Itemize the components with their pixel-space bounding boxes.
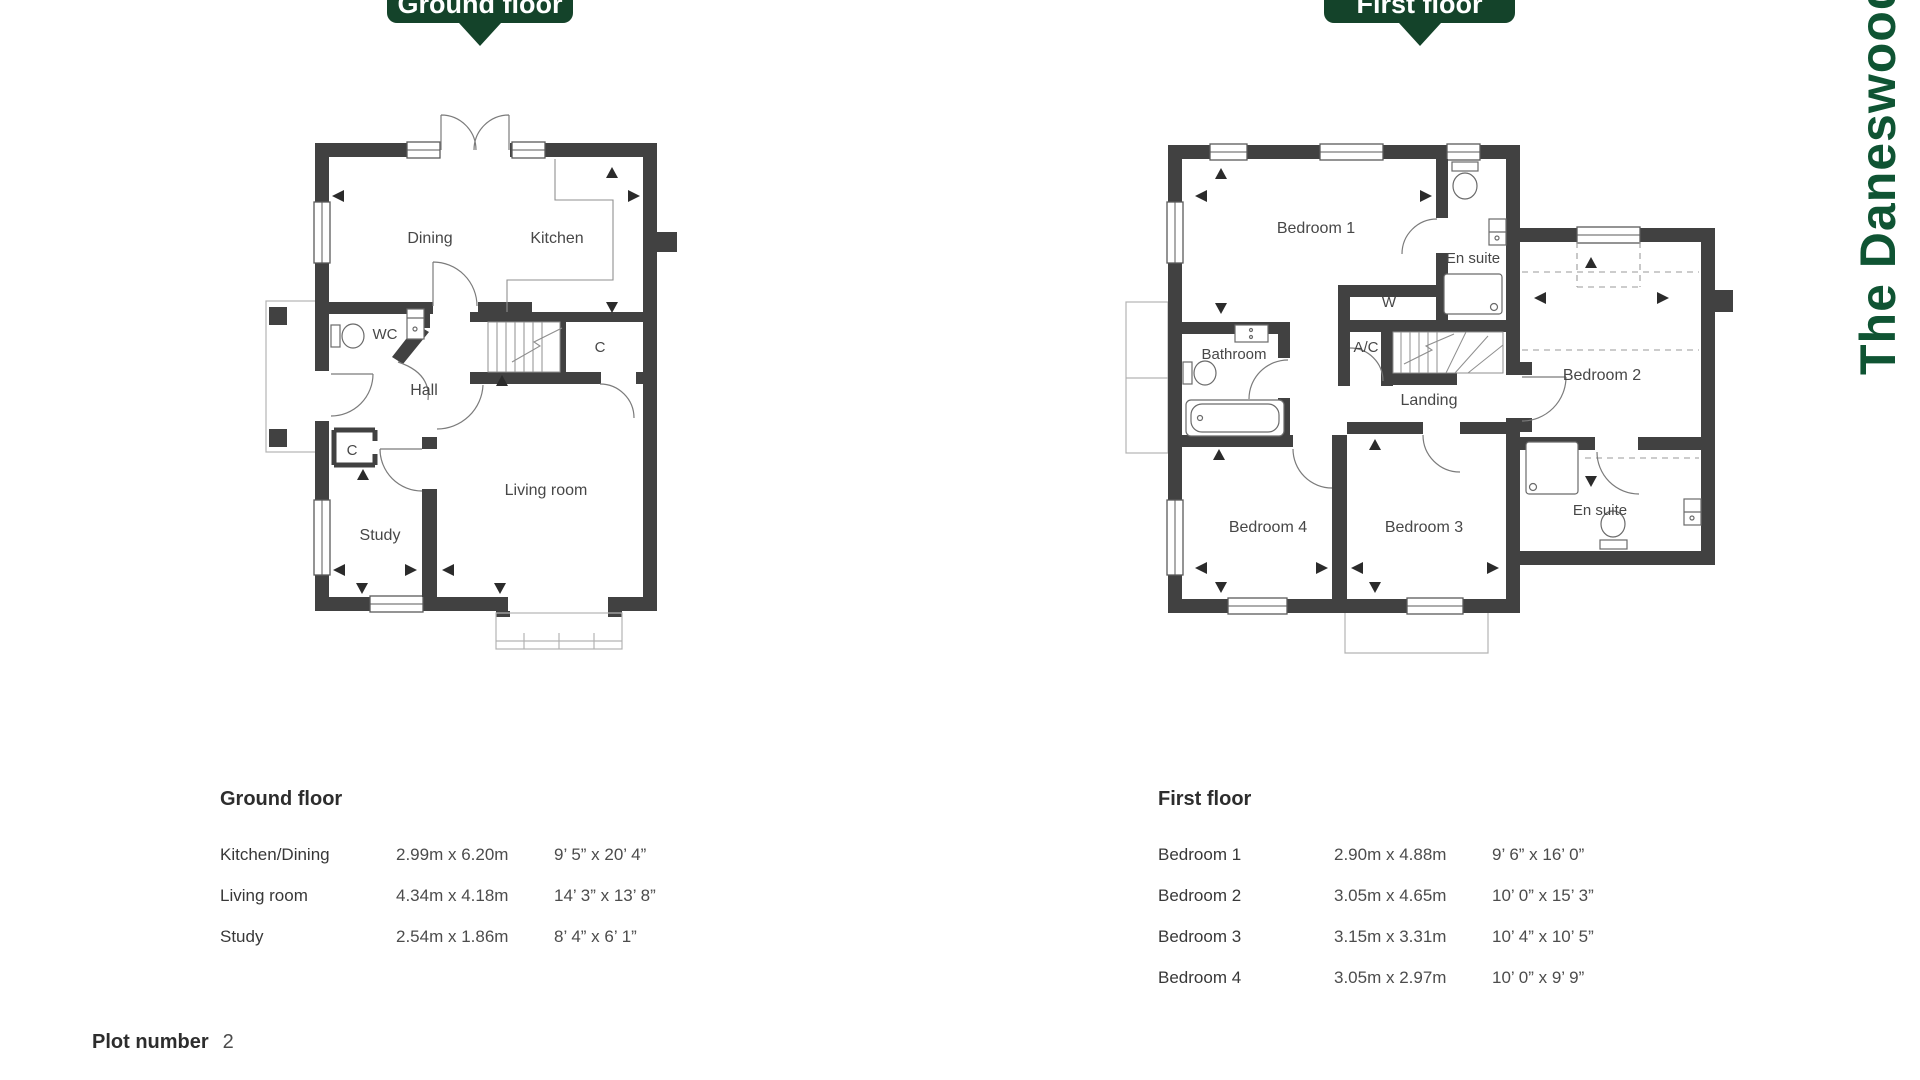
room-label-kitchen: Kitchen [530, 230, 583, 247]
chimney [657, 232, 677, 252]
window [407, 142, 440, 158]
metric-dimensions: 4.34m x 4.18m [396, 886, 554, 906]
room-label-ac: A/C [1353, 339, 1378, 356]
window [1577, 227, 1640, 243]
plot-number: Plot number2 [92, 1031, 234, 1054]
ceiling-dashed-lines [1522, 242, 1699, 458]
room-name: Study [220, 927, 396, 947]
room-label-wardrobe: W [1382, 294, 1397, 311]
room-label-bedroom1: Bedroom 1 [1277, 220, 1355, 237]
toilet-icon [1452, 162, 1478, 199]
toilet-icon [331, 324, 364, 348]
window [1228, 598, 1287, 614]
ground-floor-plan: Dining Kitchen WC Hall C C Study Living … [266, 115, 677, 649]
imperial-dimensions: 10’ 0” x 15’ 3” [1492, 886, 1594, 906]
table-title: Ground floor [220, 788, 656, 811]
room-label-dining: Dining [407, 230, 452, 247]
metric-dimensions: 2.99m x 6.20m [396, 845, 554, 865]
metric-dimensions: 3.15m x 3.31m [1334, 927, 1492, 947]
room-label-bedroom3: Bedroom 3 [1385, 519, 1463, 536]
room-label-bedroom2: Bedroom 2 [1563, 367, 1641, 384]
table-title: First floor [1158, 788, 1594, 811]
room-label-living: Living room [505, 482, 588, 499]
table-row: Bedroom 1 2.90m x 4.88m 9’ 6” x 16’ 0” [1158, 834, 1594, 875]
room-name: Bedroom 4 [1158, 968, 1334, 988]
house-type-vertical-title: The Daneswood [1849, 0, 1907, 375]
window [314, 500, 330, 575]
sink-icon [1489, 219, 1506, 245]
metric-dimensions: 2.54m x 1.86m [396, 927, 554, 947]
front-door-opening [313, 371, 330, 421]
porch-outline [266, 301, 316, 452]
first-floor-dimensions-table: First floor Bedroom 1 2.90m x 4.88m 9’ 6… [1158, 788, 1594, 998]
imperial-dimensions: 14’ 3” x 13’ 8” [554, 886, 656, 906]
stairs [1393, 332, 1503, 373]
metric-dimensions: 2.90m x 4.88m [1334, 845, 1492, 865]
room-label-landing: Landing [1401, 392, 1458, 409]
imperial-dimensions: 10’ 0” x 9’ 9” [1492, 968, 1594, 988]
room-name: Bedroom 3 [1158, 927, 1334, 947]
room-label-wc: WC [373, 326, 398, 343]
imperial-dimensions: 9’ 5” x 20’ 4” [554, 845, 656, 865]
room-label-closet-hall: C [347, 442, 358, 459]
shower-icon [1444, 274, 1502, 314]
bedroom2-door-opening [1505, 375, 1521, 418]
ground-floor-banner-label: Ground floor [398, 0, 563, 20]
plot-number-label: Plot number [92, 1031, 209, 1053]
stairs [488, 322, 562, 372]
sink-icon [1684, 499, 1701, 525]
room-name: Bedroom 2 [1158, 886, 1334, 906]
room-label-ensuite1: En suite [1446, 250, 1500, 267]
sink-icon [407, 309, 424, 339]
bay-opening [508, 596, 608, 613]
table-row: Living room 4.34m x 4.18m 14’ 3” x 13’ 8… [220, 875, 656, 916]
table-row: Kitchen/Dining 2.99m x 6.20m 9’ 5” x 20’… [220, 834, 656, 875]
bay-window [496, 613, 622, 649]
chimney [1715, 290, 1733, 312]
window [1447, 144, 1480, 160]
banner-pointer [459, 23, 501, 46]
window [314, 202, 330, 263]
room-name: Kitchen/Dining [220, 845, 396, 865]
room-label-bathroom: Bathroom [1201, 346, 1266, 363]
table-row: Study 2.54m x 1.86m 8’ 4” x 6’ 1” [220, 916, 656, 957]
sink-icon [1235, 325, 1268, 342]
table-row: Bedroom 3 3.15m x 3.31m 10’ 4” x 10’ 5” [1158, 916, 1594, 957]
table-row: Bedroom 4 3.05m x 2.97m 10’ 0” x 9’ 9” [1158, 957, 1594, 998]
window [512, 142, 545, 158]
shower-icon [1526, 442, 1578, 494]
first-floor-plan: Bedroom 1 En suite W Bathroom A/C Landin… [1126, 144, 1733, 653]
window [370, 596, 423, 612]
first-floor-banner-label: First floor [1357, 0, 1483, 20]
room-name: Living room [220, 886, 396, 906]
room-name: Bedroom 1 [1158, 845, 1334, 865]
window [1320, 144, 1383, 160]
banner-pointer [1399, 23, 1441, 46]
ground-floor-dimensions-table: Ground floor Kitchen/Dining 2.99m x 6.20… [220, 788, 656, 957]
imperial-dimensions: 9’ 6” x 16’ 0” [1492, 845, 1594, 865]
toilet-icon [1183, 361, 1216, 385]
first-floor-banner: First floor [1324, 0, 1515, 23]
metric-dimensions: 3.05m x 4.65m [1334, 886, 1492, 906]
window [1167, 500, 1183, 575]
room-label-bedroom4: Bedroom 4 [1229, 519, 1307, 536]
room-label-study: Study [360, 527, 401, 544]
imperial-dimensions: 8’ 4” x 6’ 1” [554, 927, 656, 947]
room-label-ensuite2: En suite [1573, 502, 1627, 519]
ground-floor-banner: Ground floor [387, 0, 573, 23]
room-label-hall: Hall [410, 382, 438, 399]
imperial-dimensions: 10’ 4” x 10’ 5” [1492, 927, 1594, 947]
window [1167, 202, 1183, 263]
floorplan-page: Dining Kitchen WC Hall C C Study Living … [0, 0, 1920, 1080]
window [1210, 144, 1247, 160]
table-row: Bedroom 2 3.05m x 4.65m 10’ 0” x 15’ 3” [1158, 875, 1594, 916]
plot-number-value: 2 [223, 1031, 234, 1053]
metric-dimensions: 3.05m x 2.97m [1334, 968, 1492, 988]
bathtub-icon [1186, 400, 1284, 436]
room-label-closet-stairs: C [595, 339, 606, 356]
window [1407, 598, 1463, 614]
